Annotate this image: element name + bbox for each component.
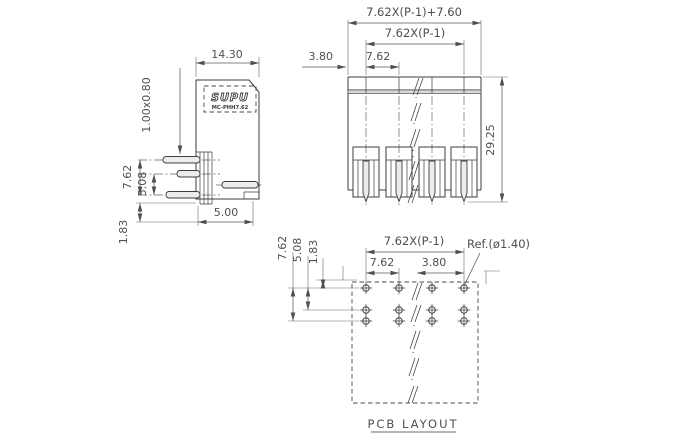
- side-pin-inner: [222, 182, 258, 189]
- side-view-dimensions: 14.30 1.00x0.80 7.62 5.08 1.83 5.00: [117, 48, 259, 244]
- dim-pitch: 7.62: [366, 50, 391, 63]
- pcb-layout-title: PCB LAYOUT: [367, 417, 458, 431]
- dim-standoff: 1.83: [117, 220, 130, 245]
- dim-row-span: 7.62: [276, 236, 289, 261]
- dim-overall-width: 7.62X(P-1)+7.60: [366, 5, 462, 19]
- pcb-layout-caption: PCB LAYOUT: [367, 417, 458, 432]
- hole-ref-label: Ref.(ø1.40): [467, 237, 530, 251]
- logo-plate: SUPU MC-PHH7.62: [204, 86, 256, 112]
- pcb-pad: [458, 304, 470, 316]
- engineering-drawing-canvas: SUPU MC-PHH7.62 14.30 1.00x0.80 7.62 5.0…: [0, 0, 680, 440]
- pcb-pad: [360, 304, 372, 316]
- pcb-dimensions: 7.62 5.08 1.83 7.62X(P-1) 7.62 3.80 Ref.…: [276, 234, 530, 321]
- dim-height: 29.25: [484, 124, 497, 156]
- side-pin-row1: [163, 157, 200, 164]
- pcb-pad: [360, 315, 372, 327]
- ext-lines: [348, 20, 508, 202]
- ext-lines: [136, 57, 259, 226]
- front-view: 7.62X(P-1)+7.60 7.62X(P-1) 7.62 3.80 29.…: [302, 5, 508, 205]
- dim-edge-offset: 1.83: [307, 240, 320, 265]
- pcb-pads: [360, 282, 470, 327]
- front-break-line: [408, 78, 423, 203]
- dim-depth: 5.00: [214, 206, 239, 219]
- dim-edge-margin: 3.80: [422, 256, 447, 269]
- dim-edge-margin: 3.80: [309, 50, 334, 63]
- pcb-break-line: [408, 283, 422, 403]
- pcb-layout-view: 7.62 5.08 1.83 7.62X(P-1) 7.62 3.80 Ref.…: [276, 234, 530, 432]
- front-centerlines: [366, 96, 464, 205]
- hole-ref-leader: [464, 253, 480, 286]
- pcb-pad: [458, 315, 470, 327]
- dim-row-spacing: 5.08: [291, 238, 304, 263]
- pcb-pad: [426, 304, 438, 316]
- pcb-pad: [426, 315, 438, 327]
- dim-pin-span: 7.62X(P-1): [385, 26, 446, 40]
- connector-drawing: SUPU MC-PHH7.62 14.30 1.00x0.80 7.62 5.0…: [0, 0, 680, 440]
- side-pin-row3: [166, 192, 200, 199]
- pcb-pad: [458, 282, 470, 294]
- pcb-pad: [360, 282, 372, 294]
- model-number: MC-PHH7.62: [212, 105, 249, 111]
- pcb-pad: [426, 282, 438, 294]
- side-foot: [244, 192, 259, 199]
- slot-inner-lines: [353, 160, 477, 197]
- dim-pin-row-span: 7.62: [121, 165, 134, 190]
- side-pin-row2: [177, 171, 200, 178]
- pcb-pad: [393, 315, 405, 327]
- pcb-pad: [393, 282, 405, 294]
- side-view: SUPU MC-PHH7.62 14.30 1.00x0.80 7.62 5.0…: [117, 48, 262, 244]
- dim-pad-span: 7.62X(P-1): [384, 234, 445, 248]
- brand-logo: SUPU: [211, 91, 249, 104]
- pcb-pad: [393, 304, 405, 316]
- dim-body-width: 14.30: [211, 48, 243, 61]
- dim-pin-row-spacing: 5.08: [136, 172, 149, 197]
- dim-pitch: 7.62: [370, 256, 395, 269]
- pcb-board-outline: [352, 282, 478, 403]
- dim-pin-cross-section: 1.00x0.80: [140, 77, 153, 133]
